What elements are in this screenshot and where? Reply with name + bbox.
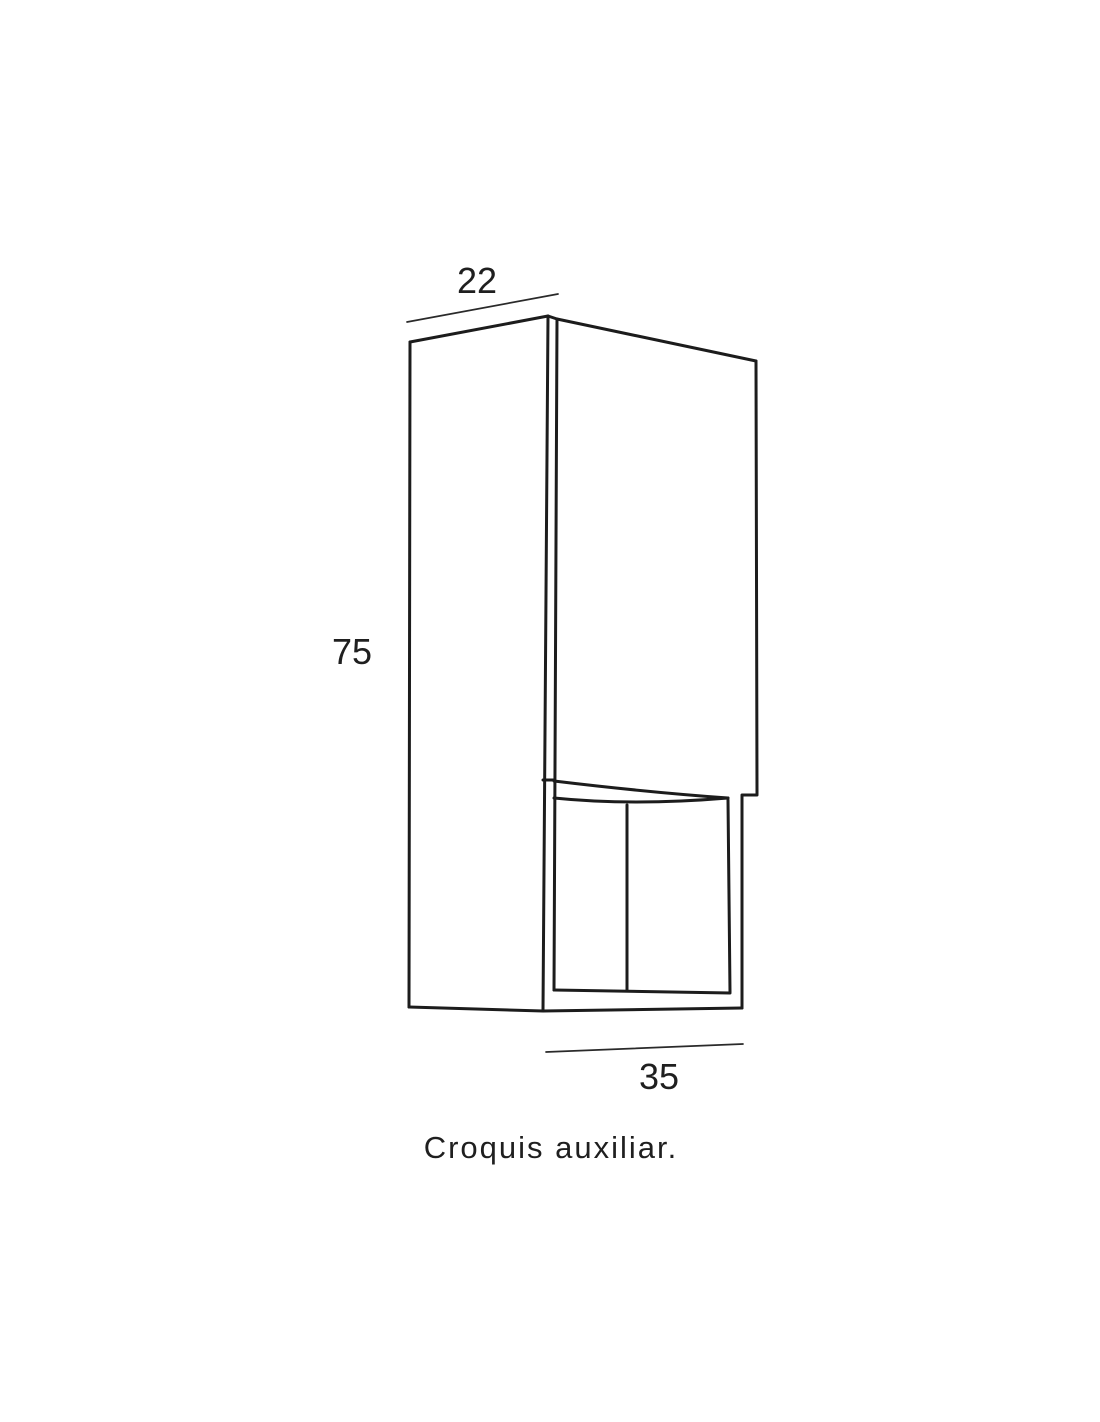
front-door-outline — [554, 319, 757, 1008]
dimension-label-left-height: 75 — [332, 631, 372, 672]
corner-edge — [543, 316, 557, 1010]
dimension-annotations: 22 75 35 — [332, 260, 743, 1097]
side-panel-outline — [409, 316, 742, 1011]
dimension-label-bottom-width: 35 — [639, 1056, 679, 1097]
page: 22 75 35 Croquis auxiliar. — [0, 0, 1100, 1422]
dimension-label-top-depth: 22 — [457, 260, 497, 301]
caption-text: Croquis auxiliar. — [424, 1130, 679, 1165]
dimension-line-bottom-width — [546, 1044, 743, 1052]
cabinet-sketch: 22 75 35 Croquis auxiliar. — [0, 0, 1100, 1422]
cabinet-outline — [409, 316, 757, 1011]
open-shelf-outline — [554, 798, 730, 993]
